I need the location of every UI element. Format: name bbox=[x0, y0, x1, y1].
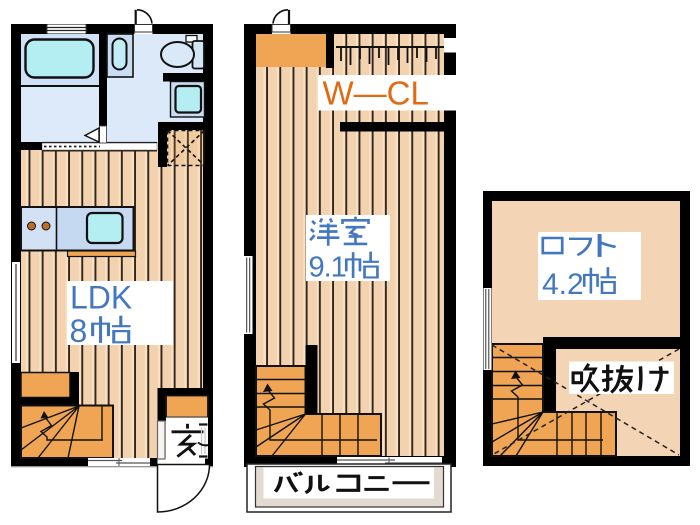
svg-text:W—CL: W—CL bbox=[323, 75, 429, 112]
svg-text:8: 8 bbox=[70, 313, 88, 349]
svg-text:LDK: LDK bbox=[70, 280, 132, 316]
svg-text:9.1: 9.1 bbox=[309, 252, 346, 284]
svg-text:4.2: 4.2 bbox=[542, 268, 584, 301]
